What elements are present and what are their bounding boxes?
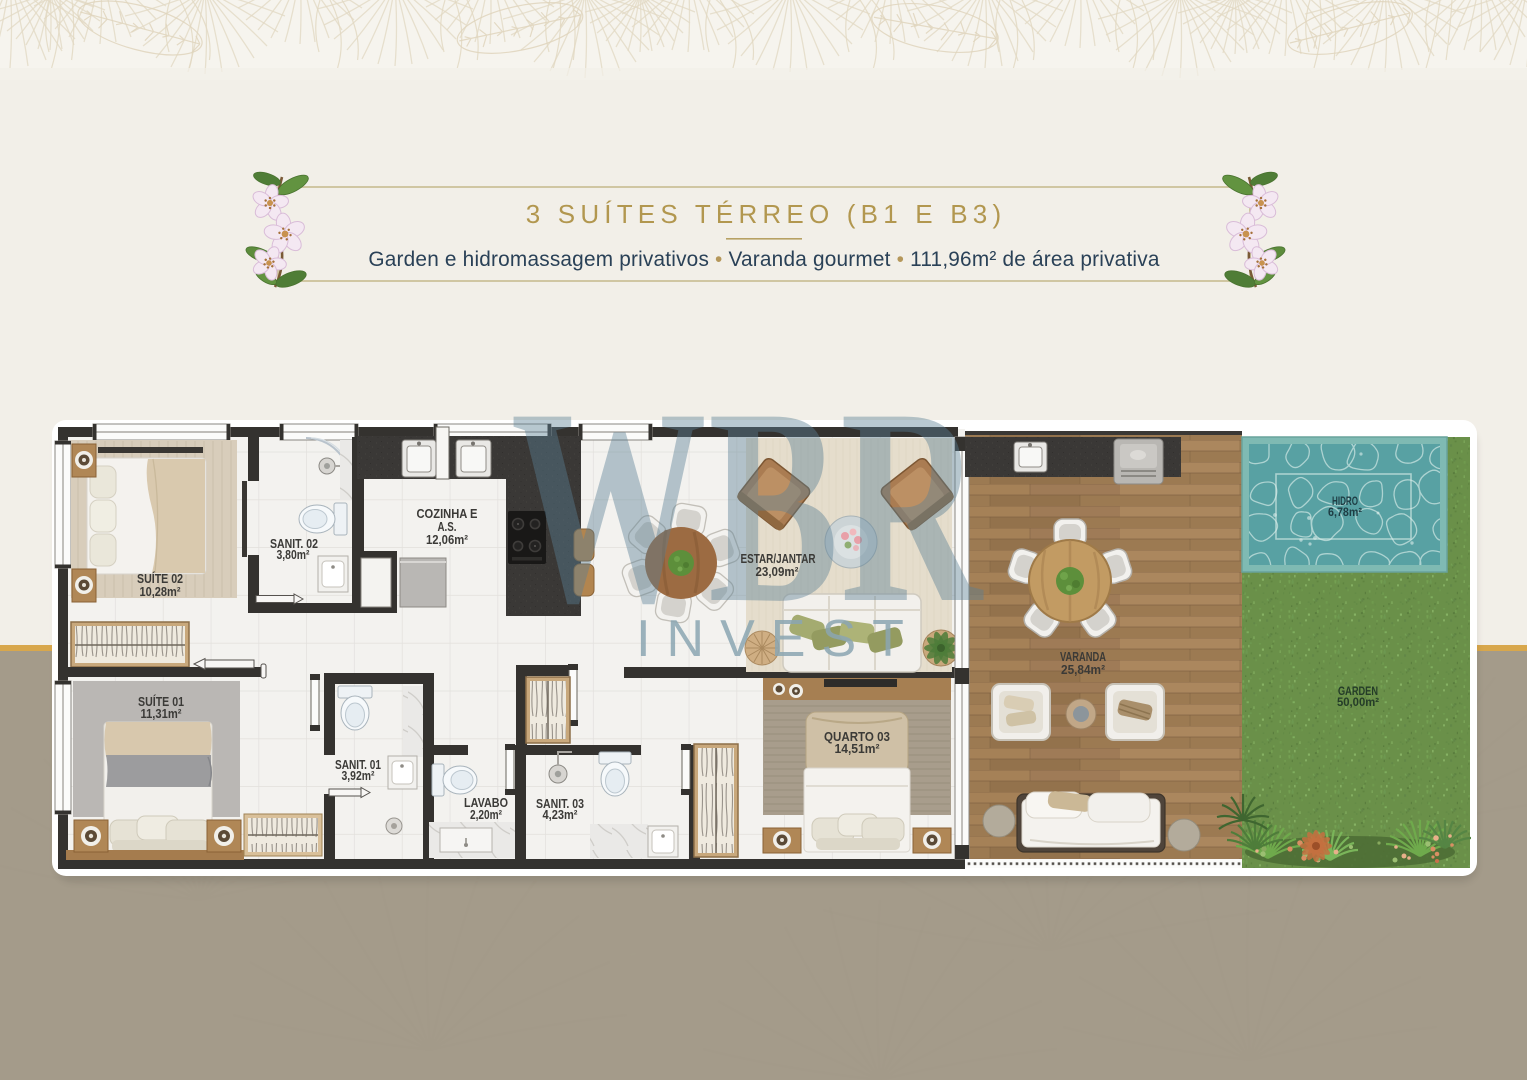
svg-text:INVEST: INVEST	[636, 610, 920, 668]
svg-text:10,28m²: 10,28m²	[140, 584, 182, 599]
svg-text:3,92m²: 3,92m²	[342, 768, 376, 783]
svg-text:14,51m²: 14,51m²	[835, 741, 881, 756]
svg-text:3 SUÍTES TÉRREO (B1 E B3): 3 SUÍTES TÉRREO (B1 E B3)	[526, 199, 1007, 229]
svg-text:11,31m²: 11,31m²	[141, 706, 183, 721]
svg-text:23,09m²: 23,09m²	[756, 564, 800, 579]
svg-text:12,06m²: 12,06m²	[426, 532, 469, 547]
svg-text:3,80m²: 3,80m²	[277, 547, 311, 562]
svg-text:4,23m²: 4,23m²	[543, 807, 579, 822]
svg-text:50,00m²: 50,00m²	[1337, 695, 1379, 709]
svg-text:6,78m²: 6,78m²	[1328, 505, 1362, 519]
svg-text:2,20m²: 2,20m²	[470, 807, 503, 822]
svg-text:Garden e hidromassagem privati: Garden e hidromassagem privativos • Vara…	[368, 248, 1159, 271]
svg-text:25,84m²: 25,84m²	[1061, 662, 1106, 677]
